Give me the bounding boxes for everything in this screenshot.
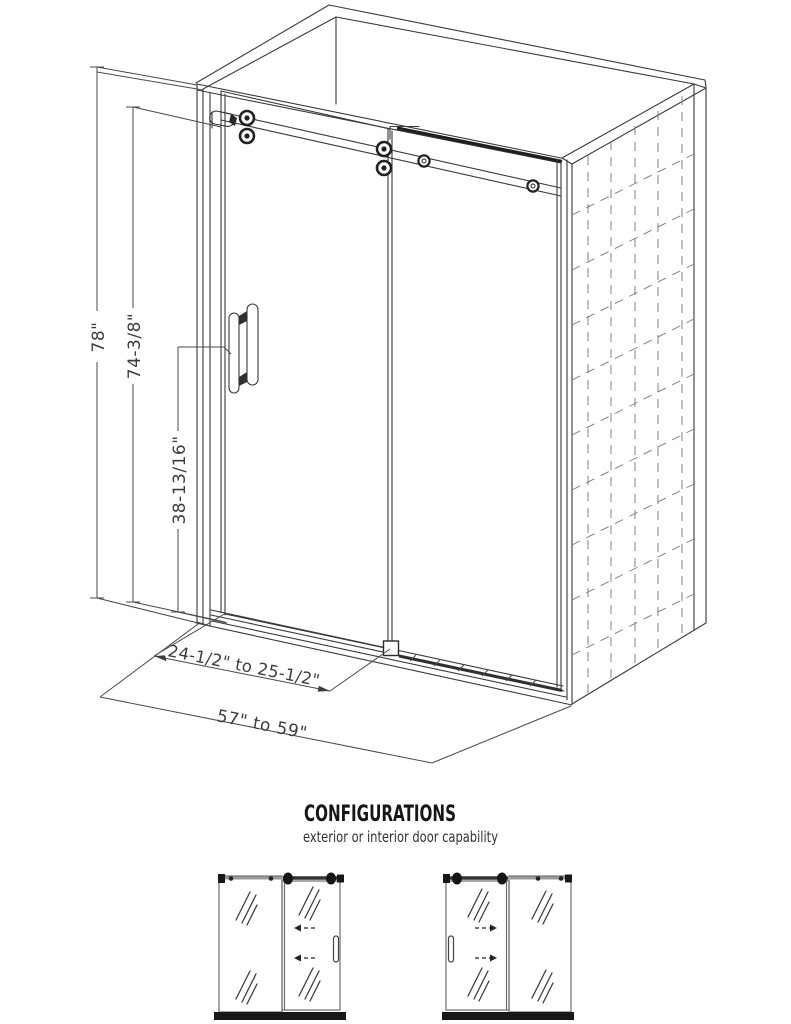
rail-dot-icon	[229, 876, 234, 881]
dimension-label-handle-height: 38-13/16"	[170, 435, 190, 524]
shower-door-dimension-drawing: 78" 74-3/8" 38-13/16" 24-1/2" to 25-1/2"…	[0, 0, 791, 1024]
mini-door-handle	[334, 936, 339, 962]
glass-hatch-marks	[468, 889, 553, 1003]
mini-threshold-bar	[214, 1012, 346, 1020]
slide-direction-arrow-right-icon	[475, 925, 497, 962]
rail-bolt-icon	[418, 155, 429, 166]
config-diagram-slide-right	[442, 873, 574, 1021]
dimension-door-width: 24-1/2" to 25-1/2"	[154, 613, 390, 692]
dimension-label-door-width: 24-1/2" to 25-1/2"	[166, 641, 321, 690]
page: 78" 74-3/8" 38-13/16" 24-1/2" to 25-1/2"…	[0, 0, 791, 1024]
rail-bolt-icon	[527, 180, 538, 191]
dimension-handle-height: 38-13/16"	[170, 347, 231, 623]
fixed-glass-panel	[390, 127, 562, 691]
door-handle	[229, 304, 258, 393]
top-rail	[221, 112, 561, 196]
slide-direction-arrow-left-icon	[294, 925, 315, 962]
roller-icon	[283, 873, 293, 885]
mini-threshold-bar	[442, 1012, 574, 1020]
dimension-label-glass-height: 74-3/8"	[125, 313, 145, 379]
configurations-title: CONFIGURATIONS	[304, 802, 456, 827]
glass-hatch-marks	[236, 887, 320, 1004]
roller-icon	[326, 873, 336, 885]
config-diagram-slide-left	[214, 873, 346, 1021]
roller-icon	[497, 873, 507, 885]
rail-end-cap-icon	[565, 875, 572, 883]
rail-end-cap-icon	[443, 874, 450, 883]
rail-dot-icon	[559, 876, 564, 881]
door-guide-block	[384, 641, 399, 656]
rail-end-cap-icon	[218, 874, 225, 883]
tiled-wall-grid	[572, 96, 694, 694]
roller-icon	[452, 873, 462, 885]
roller-icon	[377, 142, 391, 175]
dimension-label-total-height: 78"	[89, 322, 109, 353]
rail-dot-icon	[536, 876, 541, 881]
dimension-label-overall-width: 57" to 59"	[215, 706, 309, 743]
dimension-overall-width: 57" to 59"	[100, 624, 571, 763]
mini-door-handle	[449, 936, 454, 962]
rail-end-cap-icon	[337, 875, 344, 883]
rail-dot-icon	[269, 876, 274, 881]
enclosure-walls	[196, 5, 706, 705]
configurations-subtitle: exterior or interior door capability	[303, 828, 498, 846]
